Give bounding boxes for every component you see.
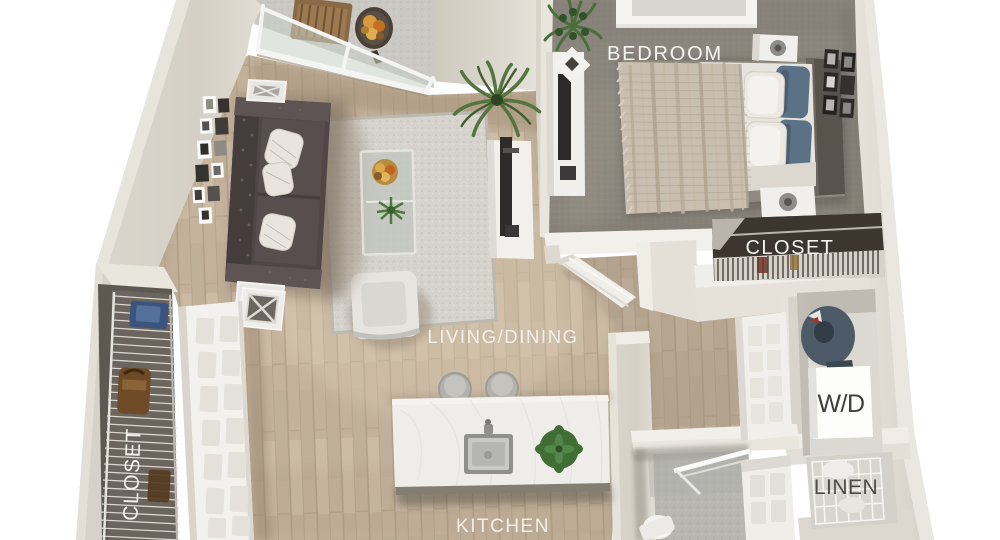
svg-text:KITCHEN: KITCHEN bbox=[456, 516, 550, 537]
svg-text:LINEN: LINEN bbox=[814, 476, 878, 499]
svg-text:CLOSET: CLOSET bbox=[745, 237, 834, 259]
svg-text:CLOSET: CLOSET bbox=[119, 427, 145, 521]
svg-text:BEDROOM: BEDROOM bbox=[607, 43, 723, 65]
svg-text:LIVING/DINING: LIVING/DINING bbox=[427, 326, 578, 347]
svg-text:W/D: W/D bbox=[817, 390, 864, 418]
